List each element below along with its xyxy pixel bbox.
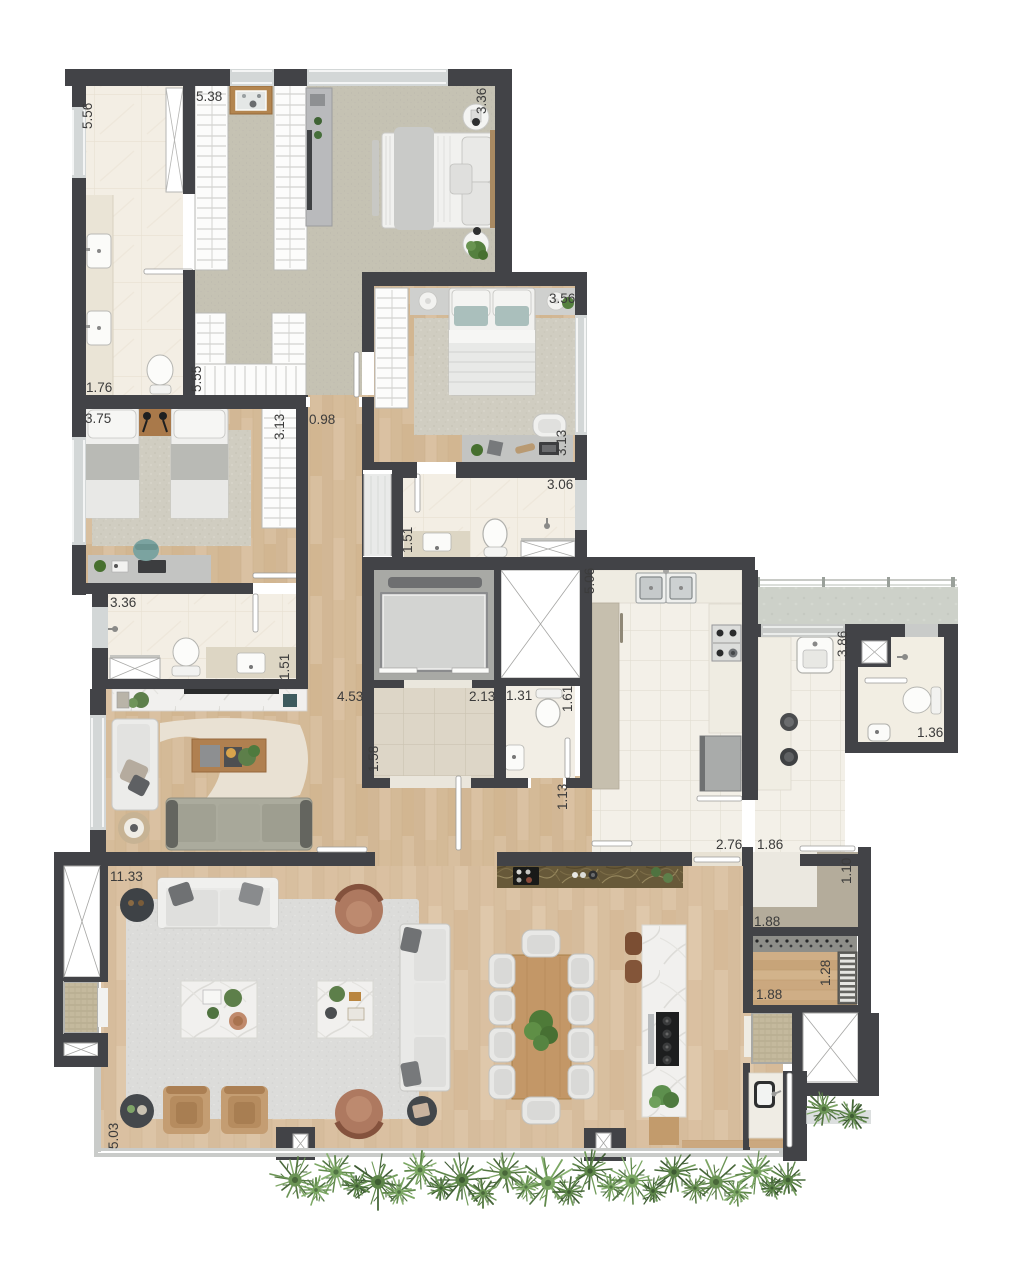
svg-text:1.13: 1.13 [555,784,570,810]
svg-text:2.76: 2.76 [716,837,742,852]
svg-text:1.28: 1.28 [818,960,833,986]
svg-text:3.13: 3.13 [554,430,569,456]
svg-text:1.51: 1.51 [277,654,292,680]
svg-text:5.38: 5.38 [196,89,222,104]
svg-text:1.31: 1.31 [506,688,532,703]
svg-text:3.06: 3.06 [547,477,573,492]
svg-text:4.53: 4.53 [337,689,363,704]
svg-text:0.98: 0.98 [309,412,335,427]
svg-text:1.76: 1.76 [86,380,112,395]
svg-text:1.10: 1.10 [839,858,854,884]
svg-text:1.88: 1.88 [754,914,780,929]
svg-text:3.86: 3.86 [835,631,850,657]
svg-text:3.36: 3.36 [110,595,136,610]
svg-text:1.51: 1.51 [400,527,415,553]
svg-text:11.33: 11.33 [110,869,143,884]
svg-text:5.06: 5.06 [582,568,597,594]
svg-text:3.56: 3.56 [549,291,575,306]
svg-text:5.55: 5.55 [189,366,204,392]
svg-text:5.03: 5.03 [106,1123,121,1149]
svg-text:1.61: 1.61 [560,686,575,712]
svg-text:1.36: 1.36 [917,725,943,740]
svg-text:1.88: 1.88 [756,987,782,1002]
svg-text:3.75: 3.75 [85,411,111,426]
svg-text:1.58: 1.58 [366,746,381,772]
svg-text:5.56: 5.56 [80,103,95,129]
svg-text:1.86: 1.86 [757,837,783,852]
svg-text:2.13: 2.13 [469,689,495,704]
svg-text:3.13: 3.13 [272,414,287,440]
svg-text:3.36: 3.36 [474,88,489,114]
